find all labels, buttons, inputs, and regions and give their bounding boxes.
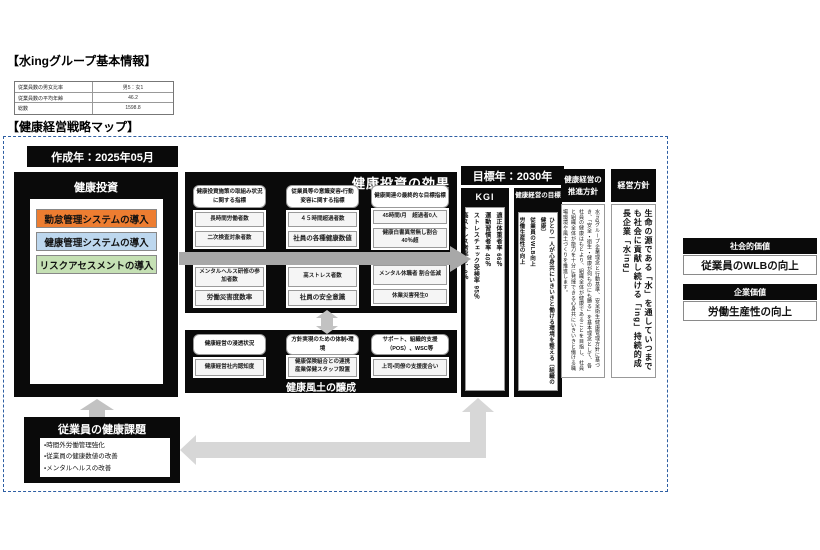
effects-col3-low2: 休業災害発生0 [373, 289, 447, 304]
effects-col3-up1: 45時間/月 超過者0人 [373, 210, 447, 224]
row-value: 46.2 [93, 93, 173, 103]
issues-to-investment-arrow-head-icon [80, 399, 114, 410]
feedback-arrow-vertical-shaft [470, 412, 486, 445]
kgi-line: ストレスチェック受検率 95％ [470, 212, 479, 386]
issue-item: ・時間外労働管理強化 [44, 440, 166, 451]
culture-col2-header: 方針実現のための体制・環境 [286, 334, 359, 355]
issue-item: ・従業員の健康数値の改善 [44, 451, 166, 462]
investment-item-risk-assessment: リスクアセスメントの導入 [36, 255, 157, 274]
promotion-header: 健康経営の推進方針 [561, 169, 605, 202]
effects-col1-low2: 労働災害度数率 [195, 290, 264, 306]
culture-panel-title: 健康風土の醸成 [185, 379, 457, 394]
effects-col2-low2: 社員の安全意識 [288, 290, 357, 306]
table-row: 総数 1598.8 [15, 103, 173, 114]
goal-panel-title: 健康経営の目標 [514, 191, 562, 201]
kgi-line: 運動習慣者率 40％ [481, 212, 490, 386]
culture-col3-item: 上司・同僚の支援度合い [373, 359, 447, 376]
investment-item-health-system: 健康管理システムの導入 [36, 232, 157, 251]
effects-col1-up1: 長時間労働者数 [195, 212, 264, 227]
updown-arrow-shaft [321, 318, 333, 326]
promotion-body: 水ingグループ企業理念と行動基準、安全衛生健康管理方針に基づき、「安全・衛生・… [561, 209, 601, 373]
social-value-header: 社会的価値 [683, 238, 817, 254]
row-value: 男5：女1 [93, 82, 173, 92]
effects-col1-up2: 二次検査対象者数 [195, 231, 264, 247]
target-year-bar: 目標年：2030年 [461, 166, 564, 185]
row-value: 1598.8 [93, 103, 173, 114]
social-value-box: 従業員のWLBの向上 [683, 255, 817, 275]
kgi-panel-title: KGI [461, 192, 509, 202]
updown-arrow-up-icon [316, 310, 338, 318]
kgi-line: 高ストレス者率 9．0％ [459, 212, 468, 386]
effects-col3-low1: メンタル休職者 割合低減 [373, 265, 447, 285]
feedback-arrow-horizontal-shaft [196, 442, 486, 458]
effects-col1-header: 健康投資施策の取組み状況に関する指標 [193, 185, 266, 208]
policy-card: 生命の源である「水」を通していつまでも社会に貢献し続ける「ing」持続的成長企業… [611, 204, 656, 378]
effects-col2-up1: ４５時間超過者数 [288, 212, 357, 227]
effects-col3-header: 健康関連の最終的な目標指標 [371, 185, 449, 208]
kgi-card: 適正体重者率 66％ 運動習慣者率 40％ ストレスチェック受検率 95％ 高ス… [465, 207, 505, 391]
culture-col1-item: 健康経営社内認知度 [195, 359, 264, 376]
goal-line: ひとり一人が心身共にいきいきと働ける環境を整える〔組織の健康〕 [538, 217, 555, 386]
investment-to-kgi-arrow-shaft [179, 252, 450, 265]
feedback-arrow-up-head-icon [462, 398, 494, 412]
effects-col2-low1: 高ストレス者数 [288, 267, 357, 287]
goal-line: 従業員のWLB向上 [527, 217, 536, 386]
investment-panel-title: 健康投資 [14, 179, 178, 195]
issues-panel-title: 従業員の健康課題 [24, 421, 180, 437]
row-label: 従業員数の平均年齢 [15, 93, 93, 103]
investment-item-attendance: 勤怠管理システムの導入 [36, 209, 157, 228]
investment-to-kgi-arrow-head-icon [450, 246, 471, 272]
feedback-arrow-left-head-icon [180, 435, 196, 465]
basic-info-title: 【水ingグループ基本情報】 [7, 52, 156, 69]
row-label: 総数 [15, 103, 93, 114]
corporate-value-header: 企業価値 [683, 284, 817, 300]
corporate-value-box: 労働生産性の向上 [683, 301, 817, 321]
goal-line: 労働生産性の向上 [517, 217, 526, 386]
issue-item: ・メンタルヘルスの改善 [44, 463, 166, 474]
effects-col3-up2: 健康白書異常無し割合 40％超 [373, 228, 447, 248]
goal-card: ひとり一人が心身共にいきいきと働ける環境を整える〔組織の健康〕 従業員のWLB向… [518, 212, 558, 391]
table-row: 従業員数の平均年齢 46.2 [15, 93, 173, 104]
strategy-map-title: 【健康経営戦略マップ】 [7, 118, 139, 135]
created-year-bar: 作成年：2025年05月 [27, 146, 178, 167]
culture-col1-header: 健康経営の浸透状況 [193, 334, 266, 355]
promotion-card: 水ingグループ企業理念と行動基準、安全衛生健康管理方針に基づき、「安全・衛生・… [561, 204, 605, 378]
effects-col2-up2: 社員の各種健康数値 [288, 231, 357, 247]
effects-col2-header: 従業員等の意識変容・行動変容に関する指標 [286, 185, 359, 208]
effects-col1-low1: メンタルヘルス研修の参加者数 [195, 267, 264, 287]
strategy-map-page: 【水ingグループ基本情報】 従業員数の男女比率 男5：女1 従業員数の平均年齢… [0, 0, 820, 550]
kgi-line: 適正体重者率 66％ [493, 212, 502, 386]
updown-arrow-down-icon [316, 326, 338, 334]
issues-list: ・時間外労働管理強化 ・従業員の健康数値の改善 ・メンタルヘルスの改善 [40, 438, 170, 477]
policy-header: 経営方針 [611, 169, 656, 202]
issues-to-investment-arrow-shaft [89, 410, 105, 417]
basic-info-table: 従業員数の男女比率 男5：女1 従業員数の平均年齢 46.2 総数 1598.8 [14, 81, 174, 115]
culture-col2-item: 健康保険組合との連携 産業保健スタッフ設置 [288, 357, 357, 377]
culture-col3-header: サポート、組織的支援（POS）、WSC等 [371, 334, 449, 355]
row-label: 従業員数の男女比率 [15, 82, 93, 92]
policy-body: 生命の源である「水」を通していつまでも社会に貢献し続ける「ing」持続的成長企業… [621, 209, 653, 373]
table-row: 従業員数の男女比率 男5：女1 [15, 82, 173, 93]
